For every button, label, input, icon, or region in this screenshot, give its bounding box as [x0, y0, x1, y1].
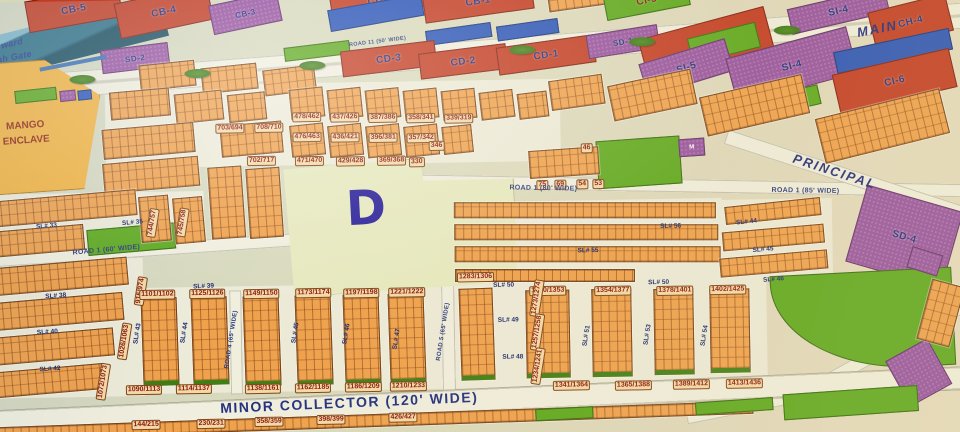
plot-grid [174, 90, 225, 125]
plot-grid [478, 89, 515, 121]
plot-grid [458, 288, 495, 381]
plot-number: 1138/1161 [245, 384, 281, 395]
plot-number: 476/463 [292, 132, 321, 143]
plot-number: 1378/1401 [656, 285, 693, 296]
plot-grid [548, 74, 606, 111]
mosque-block: M [678, 138, 705, 158]
plot-number: 426/427 [388, 412, 417, 423]
plot-number: 398/399 [316, 414, 345, 425]
plot-number: 330 [409, 157, 425, 167]
plot-number: 358/341 [406, 113, 435, 124]
plot-number: 369/368 [377, 155, 406, 166]
zone-cb3: CB-3 [208, 0, 283, 35]
master-plan-map: CB-5 CB-4 CB-3 CB-2 CB-1 SD-2 CD-3 CD-2 … [0, 0, 960, 432]
plot-grid [207, 165, 246, 239]
plot-grid [441, 124, 474, 155]
street-label: SL# 50 [493, 282, 514, 289]
plot-number: 230/231 [196, 419, 225, 430]
plot-grid [295, 294, 334, 385]
zone-ci5: CI-5 [602, 0, 690, 21]
plot-number: 339/319 [444, 113, 473, 124]
plot-number: 1413/1436 [726, 378, 763, 389]
plot-grid [607, 69, 698, 122]
sector-d-label: D [345, 179, 388, 237]
street-label: SL# 55 [577, 247, 598, 254]
street-label: SL# 38 [45, 292, 66, 300]
plot-number: 1149/1150 [243, 289, 279, 300]
plot-number: 702/717 [247, 156, 276, 167]
plot-number: 387/386 [368, 113, 397, 124]
plot-number: 358/359 [254, 417, 283, 428]
street-label: SL# 56 [660, 223, 681, 230]
street-label: SL# 50 [648, 279, 669, 286]
plot-number: 54 [576, 179, 588, 189]
plot-grid [245, 167, 284, 239]
plot-number: 1354/1377 [594, 285, 631, 296]
road1-85-label: ROAD 1 (85' WIDE) [771, 187, 839, 195]
plot-number: 429/428 [336, 156, 365, 167]
plot-number: 144/215 [131, 420, 160, 431]
plot-grid [653, 288, 694, 375]
plot-number: 1101/1102 [139, 289, 175, 300]
plot-number: 1221/1222 [388, 287, 425, 298]
plot-number: 1365/1388 [615, 380, 652, 391]
plot-number: 708/710 [254, 123, 283, 134]
park-block [595, 135, 682, 189]
plot-number: 346 [429, 141, 445, 151]
plot-grid [191, 296, 230, 385]
plot-grid [141, 297, 180, 386]
plot-grid [547, 0, 609, 12]
plot-grid [517, 90, 550, 119]
plot-number: 703/694 [215, 123, 244, 134]
plot-number: 1090/1113 [126, 385, 162, 396]
plot-number: 436/421 [330, 132, 359, 143]
plot-number: 478/462 [292, 112, 321, 123]
plot-number: 1402/1425 [709, 284, 746, 295]
plot-grid [243, 295, 282, 386]
street-label: SL# 40 [37, 328, 58, 336]
school-block [59, 89, 76, 102]
plot-number: 471/470 [295, 156, 324, 167]
street-label: SL# 48 [502, 353, 523, 360]
plot-number: 1283/1306 [457, 272, 494, 283]
zone-cb1: CB-1 [422, 0, 535, 24]
street-label: SL# 49 [498, 316, 519, 323]
plot-grid [591, 288, 633, 377]
plot-grid [227, 91, 268, 123]
plot-number: 1210/1233 [390, 381, 427, 392]
street-label: SL# 42 [39, 365, 60, 373]
plot-number: 1389/1412 [673, 379, 710, 390]
plot-grid [709, 288, 750, 373]
plot-number: 1186/1209 [345, 382, 382, 393]
map-photo: CB-5 CB-4 CB-3 CB-2 CB-1 SD-2 CD-3 CD-2 … [0, 0, 960, 432]
plot-number: 53 [592, 179, 604, 189]
plot-number: 1173/1174 [295, 288, 331, 299]
water-block [77, 89, 92, 100]
plot-number: 437/426 [330, 112, 359, 123]
plot-grid [454, 202, 716, 218]
plot-number: 1114/1137 [176, 384, 212, 395]
plot-number: 1197/1198 [343, 288, 379, 299]
plot-number: 1341/1364 [553, 380, 590, 391]
street-label: SL# 39 [193, 282, 214, 290]
plot-number: 46 [581, 143, 593, 153]
plot-grid [109, 87, 171, 120]
plot-number: 396/381 [368, 133, 397, 144]
road1-80-label: ROAD 1 (80' WIDE) [509, 184, 577, 192]
plot-number: 1162/1185 [295, 383, 331, 394]
